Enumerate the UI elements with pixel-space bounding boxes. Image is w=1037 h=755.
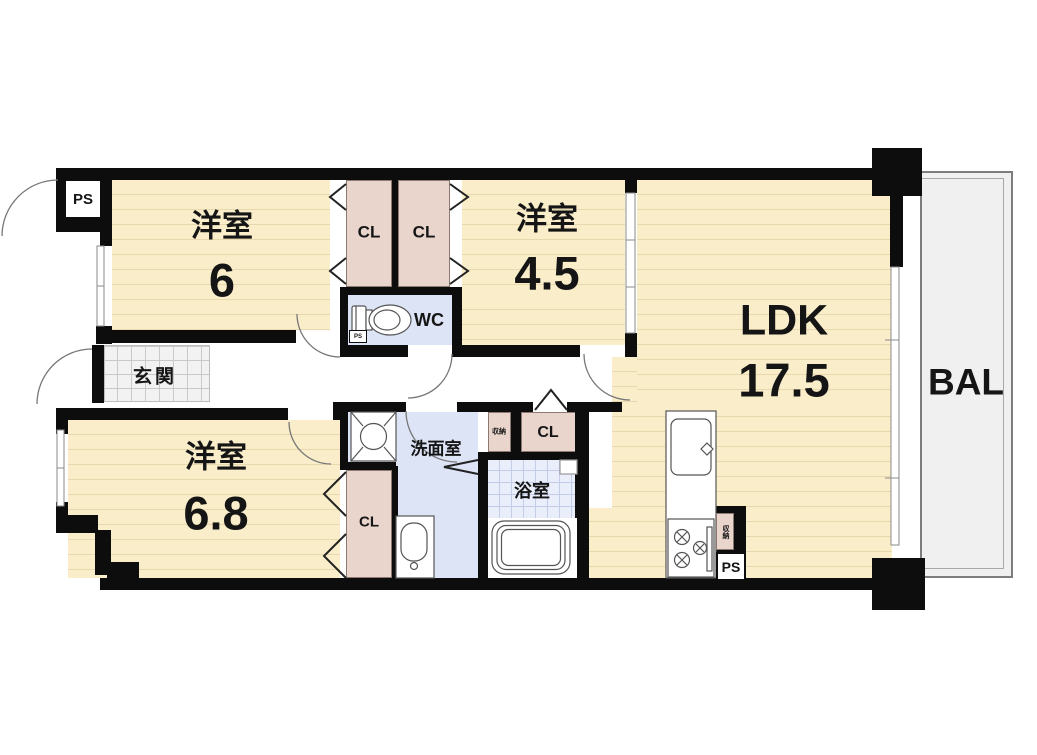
wall-closet-divider — [392, 180, 398, 287]
closet-a-fold-door — [330, 184, 346, 210]
bedroom-b-label: 洋室 — [516, 204, 578, 235]
balcony-label: BAL — [928, 364, 1004, 401]
closet-a-fold-door — [330, 258, 346, 284]
floor-plan: 洋室 6 CL CL 洋室 4.5 LDK 17.5 BAL WC 玄関 洋室 … — [0, 0, 1037, 755]
entrance-door-arc — [37, 349, 92, 404]
wall-above-wc — [340, 287, 462, 295]
wall-entrance-left — [92, 345, 104, 403]
wall-left-upper — [100, 168, 112, 246]
toilet-label: WC — [414, 311, 444, 329]
column-top-right — [872, 148, 922, 196]
washroom-label: 洗面室 — [411, 441, 462, 458]
bedroom-c-size: 6.8 — [183, 490, 248, 537]
wall-storage-top — [457, 402, 533, 412]
bedroom-b-size: 4.5 — [514, 250, 579, 297]
window-bedroom-a — [97, 246, 104, 326]
window-bedroom-c — [57, 430, 64, 506]
ldk-floor-entry — [612, 357, 637, 407]
entrance-label: 玄関 — [133, 368, 177, 387]
wall-corridor-top-right — [452, 345, 580, 357]
ldk-size: 17.5 — [738, 357, 829, 404]
column-bottom-right — [872, 558, 925, 610]
closet-bath-fold-door — [535, 390, 567, 410]
bedroom-c-label: 洋室 — [185, 442, 247, 473]
wall-above-closet-c — [340, 462, 396, 470]
wall-step-1 — [56, 515, 98, 533]
wall-wc-bottom — [340, 345, 408, 357]
bedroom-a-size: 6 — [209, 257, 235, 304]
wall-washroom-left — [340, 402, 348, 470]
wall-closet-c-right — [392, 466, 398, 578]
pipe-space-kitchen: PS — [716, 552, 746, 581]
bathroom-label: 浴室 — [514, 482, 550, 500]
closet-bath-label: CL — [537, 425, 558, 441]
wall-partition-top-stub — [625, 168, 637, 193]
pipe-space-top: PS — [66, 181, 100, 217]
wall-bath-left — [478, 452, 488, 578]
bedroom-a-label: 洋室 — [191, 211, 253, 242]
window-ldk-balcony — [891, 267, 899, 545]
wall-step-3 — [107, 562, 139, 590]
wall-bath-top — [483, 452, 577, 460]
pipe-space-top-label: PS — [73, 191, 93, 208]
wall-partition-bottom-stub — [625, 333, 637, 357]
storage-kitchen: 収納 — [716, 513, 734, 550]
pipe-space-wc: PS — [349, 330, 367, 343]
wall-wet-right — [575, 411, 589, 578]
toilet-door-arc — [408, 354, 452, 398]
meter-box-door-arc — [2, 180, 58, 236]
ldk-label: LDK — [740, 300, 828, 343]
storage-small-label: 収納 — [492, 429, 506, 436]
bedroom-b-floor-lower — [462, 295, 625, 345]
wall-bedroom-c-top — [56, 408, 288, 420]
pipe-space-kitchen-label: PS — [722, 559, 741, 575]
storage-kitchen-label: 収納 — [720, 525, 730, 539]
wall-bottom — [100, 578, 872, 590]
sliding-partition-bedroom-b — [626, 193, 635, 333]
ldk-fridge-nook — [589, 411, 612, 508]
pipe-space-wc-label: PS — [354, 334, 362, 340]
wall-right-stub — [890, 196, 903, 267]
closet-c-label: CL — [359, 515, 379, 530]
wall-washroom-door-jamb — [348, 402, 406, 412]
closet-a-label: CL — [358, 224, 381, 241]
closet-b-label: CL — [413, 224, 436, 241]
wall-bedroom-a-bottom — [100, 330, 296, 343]
wall-top — [100, 168, 872, 180]
